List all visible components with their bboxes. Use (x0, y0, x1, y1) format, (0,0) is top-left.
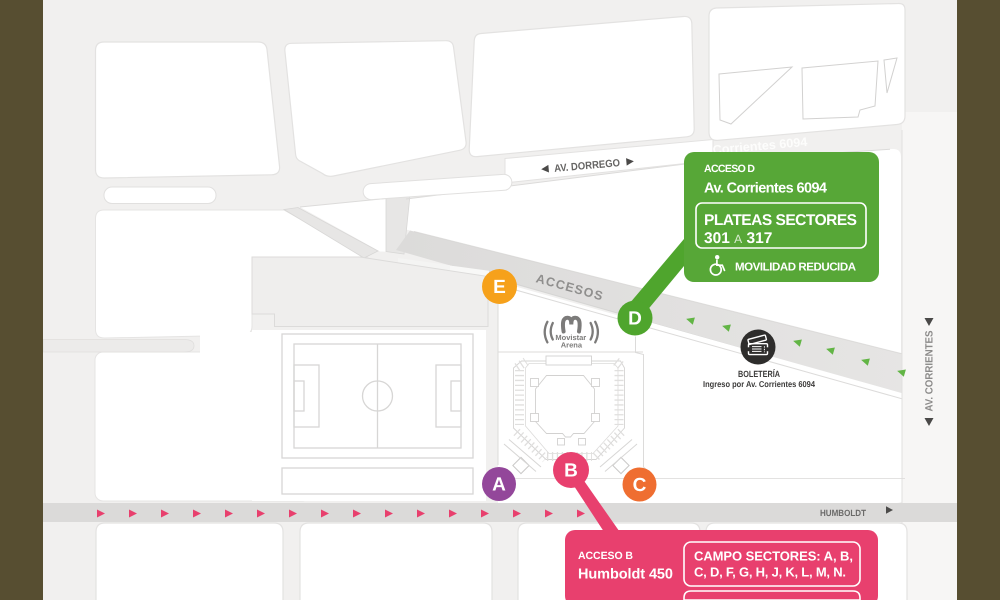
svg-text:D: D (628, 309, 642, 330)
svg-text:C, D, F, G, H, J, K, L, M, N.: C, D, F, G, H, J, K, L, M, N. (694, 565, 846, 580)
svg-text:Humboldt 450: Humboldt 450 (578, 567, 673, 583)
svg-text:PLATEAS SECTORES: PLATEAS SECTORES (704, 212, 857, 229)
svg-text:MOVILIDAD REDUCIDA: MOVILIDAD REDUCIDA (735, 262, 856, 274)
svg-text:ACCESO D: ACCESO D (704, 163, 755, 175)
svg-text:A: A (492, 475, 506, 496)
svg-text:C: C (633, 475, 647, 496)
svg-text:CAMPO SECTORES: A, B,: CAMPO SECTORES: A, B, (694, 549, 853, 564)
svg-text:B: B (564, 461, 578, 482)
svg-text:HUMBOLDT: HUMBOLDT (820, 508, 866, 518)
svg-text:Ingreso por Av. Corrientes 609: Ingreso por Av. Corrientes 6094 (703, 379, 815, 389)
svg-text:301 A 317: 301 A 317 (704, 230, 772, 247)
svg-text:ACCESO B: ACCESO B (578, 550, 633, 562)
svg-text:AV. CORRIENTES: AV. CORRIENTES (924, 331, 936, 412)
svg-text:Av. Corrientes 6094: Av. Corrientes 6094 (704, 181, 827, 197)
svg-text:Arena: Arena (561, 341, 583, 350)
svg-text:E: E (493, 277, 506, 298)
svg-text:BOLETERÍA: BOLETERÍA (738, 369, 780, 379)
